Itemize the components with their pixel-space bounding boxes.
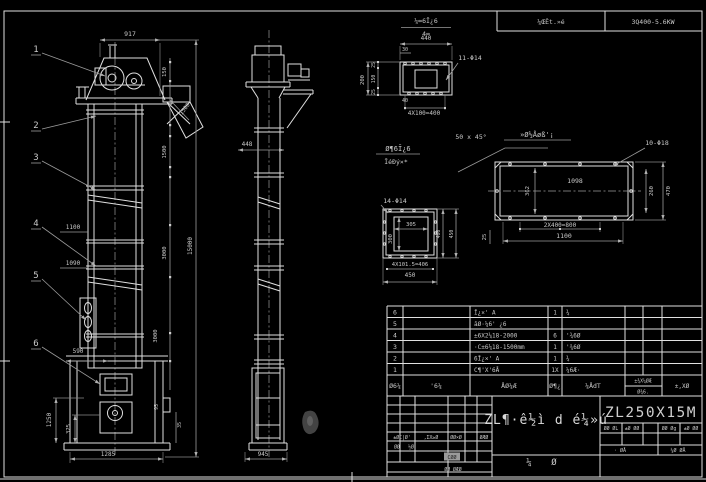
dim-25b: 25 — [371, 89, 377, 95]
bom-no: 6 — [393, 309, 397, 317]
smudge-artifact — [302, 411, 318, 434]
drawing-title: ZL¶·ê½ì d é¼»ú — [484, 413, 608, 428]
bom-row: 5 āØ·¼6' ¿6 — [393, 320, 507, 328]
dim-440: 440 — [421, 35, 432, 42]
dim-590: 590 — [73, 348, 84, 355]
bom-no: 3 — [393, 343, 397, 351]
hole-note-10xd18: 10-Φ18 — [645, 139, 669, 147]
bom-row: 3 ·C±6¼18-1500mm 1 '¾6Ø — [393, 343, 581, 351]
model-number: ZL250X15M — [605, 405, 697, 421]
bom-name: 6Ī¿×' A — [474, 356, 500, 363]
tb-cell: ØØ ØL — [604, 425, 619, 432]
dim-30: 30 — [402, 47, 408, 53]
bom-header-cell: ±¾X¼ØÆ — [634, 378, 651, 385]
dim-300: 300 — [388, 234, 394, 244]
bom-header-cell: Ø¾6. — [637, 389, 649, 396]
bom-no: 2 — [393, 355, 397, 363]
bom-row: 6 Ī¿×' A 1 ¾ — [393, 309, 570, 317]
dim-25-flange: 25 — [482, 234, 488, 241]
bom-qty: 1 — [553, 344, 557, 351]
bom-mat: ¼6Æ· — [566, 367, 580, 374]
detail-large-flange: »Ø½Åøß'¡ 10-Φ18 1098 362 260 470 2X400=8… — [482, 130, 672, 244]
header-fraction-top: ¼∞6Ī¿6 — [414, 16, 438, 25]
dim-260: 260 — [649, 186, 655, 196]
tb-sign-cell: · ØÅ — [614, 447, 626, 454]
detail-caption-1: Ø¶6Ī¿6 — [385, 144, 410, 153]
cad-drawing-sheet: ¼∞6Ī¿6 4∞ ¼ŒÊt.»é 3Q400-5.6KW — [0, 0, 706, 482]
balloon-6: 6 — [33, 339, 38, 349]
bom-header-cell: ±,XØ — [675, 383, 690, 390]
bom-no: 1 — [393, 366, 397, 374]
dim-450-bottom: 450 — [405, 272, 416, 279]
dim-1250: 1250 — [46, 412, 53, 427]
hole-note-11xd14: 11-Φ14 — [458, 54, 482, 62]
balloon-2: 2 — [33, 121, 38, 131]
detail-square-flange: 14-Φ14 305 300 406 450 4X101.5=406 450 — [381, 197, 459, 285]
dim-2x400: 2X400=800 — [544, 222, 577, 229]
bom-qty: 6 — [553, 333, 557, 340]
dim-1090: 1090 — [66, 260, 81, 267]
dim-305: 305 — [406, 222, 416, 228]
tb-cell: ½Ø — [408, 444, 414, 451]
bom-header-cell: '6¼ — [430, 382, 442, 390]
dim-1098: 1098 — [567, 177, 583, 185]
balloon-1: 1 — [33, 45, 38, 55]
bom-header-cell: Ø¶¿ — [549, 382, 561, 390]
bom-row: 4 ±6X2¼18-2000 6 '¾6Ø — [393, 332, 581, 340]
bom-mat: '¾6Ø — [566, 333, 581, 340]
chamfer-note: 50 x 45° — [455, 133, 486, 141]
tb-cell: ±ØC|Ø' — [393, 434, 410, 441]
balloon-3: 3 — [33, 153, 38, 163]
hole-note-14xd14: 14-Φ14 — [383, 197, 407, 205]
platform-brace — [287, 94, 311, 128]
dim-1285: 1285 — [101, 451, 116, 458]
header-note: ¼ŒÊt.»é — [537, 17, 564, 26]
bom-header-cell: ¼ÅdT — [585, 381, 601, 390]
dim-35: 35 — [177, 422, 183, 428]
dim-450-right: 450 — [449, 230, 455, 239]
detail-title: »Ø½Åøß'¡ — [520, 130, 554, 139]
chamfer-line — [458, 148, 548, 172]
dim-470: 470 — [666, 186, 672, 196]
bom-mat: ¾ — [566, 356, 570, 363]
dim-3000-a: 3000 — [162, 246, 168, 259]
bom-no: 4 — [393, 332, 397, 340]
bom-qty: 1 — [553, 356, 557, 363]
dim-15000: 15000 — [187, 237, 194, 255]
bom-qty: 1 — [553, 310, 557, 317]
bom-no: 5 — [393, 320, 397, 328]
bom-name: ·C±6¼18-1500mm — [474, 344, 525, 351]
balloon-4: 4 — [33, 219, 38, 229]
tb-cell: ØØ Øg — [662, 425, 677, 432]
tb-cell: ±Ø ØØ — [625, 425, 640, 432]
dim-362: 362 — [525, 186, 531, 196]
dim-448: 448 — [242, 141, 253, 148]
tb-selected-text: CØØ — [447, 454, 456, 461]
tb-stamp: ØØ ØÆØ — [444, 466, 461, 473]
drawing-canvas: ¼∞6Ī¿6 4∞ ¼ŒÊt.»é 3Q400-5.6KW — [0, 0, 706, 482]
bom-name: āØ·¼6' ¿6 — [474, 321, 507, 328]
dim-3000-b: 3000 — [153, 329, 159, 342]
detail-top-plate: 440 30 200 25 150 25 11-Φ14 40 4X100=400… — [360, 35, 548, 172]
tb-sign-cell: ¼Ø ØÅ — [670, 447, 685, 454]
bom-header-cell: Ø6¼ — [389, 382, 401, 390]
drawing-subtitle-2: Ø — [551, 457, 557, 468]
dim-95: 95 — [154, 404, 160, 410]
side-elevation-view: 448 945 — [238, 30, 313, 462]
dim-200: 200 — [360, 75, 366, 85]
front-elevation-view: 917 1100 1090 590 1250 325 1285 95 35 — [31, 30, 203, 463]
tb-cell: ØØ — [394, 444, 400, 451]
bom-name: Ī¿×' A — [474, 310, 496, 317]
bom-name: C¶'X'6Å — [474, 367, 500, 374]
tb-cell: ØÆØ — [480, 434, 489, 441]
dim-945: 945 — [258, 451, 269, 458]
bom-name: ±6X2¼18-2000 — [474, 333, 518, 340]
dim-1100: 1100 — [66, 224, 81, 231]
title-block: ±ØC|Ø' ,ΣX≥Ø ØØ×Ø ØÆØ ØØ ½Ø CØØ ØØ ØÆØ Z… — [387, 396, 702, 477]
drawing-subtitle-1: ¼ — [526, 458, 531, 468]
dim-4x100: 4X100=400 — [408, 110, 441, 117]
boot-section — [64, 356, 170, 450]
bom-mat: '¾6Ø — [566, 344, 581, 351]
bom-header-cell: ÅØ¼Æ — [501, 381, 517, 390]
tb-cell: ,ΣX≥Ø — [424, 434, 439, 441]
tb-cell: ±Ø ØØ — [684, 425, 699, 432]
tb-cell: ØØ×Ø — [450, 434, 462, 441]
detail-caption-2: ĪéÐý×* — [384, 157, 408, 166]
bom-qty: 1X — [551, 367, 559, 374]
header-motor-spec: 3Q400-5.6KW — [631, 18, 674, 26]
balloon-5: 5 — [33, 271, 38, 281]
dim-25a: 25 — [371, 62, 377, 68]
bom-row: 2 6Ī¿×' A 1 ¾ — [393, 355, 570, 363]
dim-150: 150 — [371, 75, 377, 84]
drive-unit — [95, 66, 145, 90]
dim-406-right: 406 — [436, 230, 442, 239]
dim-4x101: 4X101.5=406 — [392, 262, 428, 268]
dim-917: 917 — [124, 30, 136, 38]
dim-1500-diag: 1500 — [179, 102, 192, 116]
dim-1500: 1500 — [162, 145, 168, 158]
dim-1100-flange: 1100 — [556, 232, 572, 240]
bom-row: 1 C¶'X'6Å 1X ¼6Æ· — [393, 366, 580, 374]
dim-325: 325 — [66, 424, 72, 434]
bom-mat: ¾ — [566, 310, 570, 317]
dim-150: 150 — [162, 67, 168, 77]
